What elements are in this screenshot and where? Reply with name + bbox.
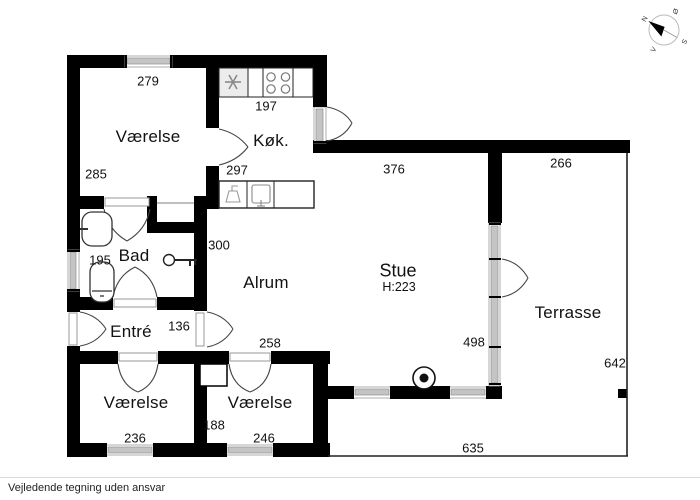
dim-266: 266	[550, 156, 572, 171]
door-entre-to-bad	[113, 267, 157, 297]
door-entre-to-alrum	[207, 312, 233, 347]
window-stue-south-2	[448, 386, 488, 399]
window-top	[125, 55, 172, 68]
dim-376: 376	[383, 162, 405, 177]
vaerelse-tl-label: Værelse	[116, 127, 181, 147]
koekken-label: Køk.	[253, 131, 289, 151]
dim-236: 236	[124, 431, 146, 446]
dim-197: 197	[255, 99, 277, 114]
window-stue-south-1	[352, 386, 392, 399]
dim-188: 188	[203, 418, 225, 433]
dim-246: 246	[253, 431, 275, 446]
window-bad	[67, 250, 80, 291]
wood-stove-icon	[413, 367, 435, 389]
door-vaerelse-to-koekken	[219, 129, 248, 165]
glass-wall-terrace	[489, 223, 501, 386]
kitchen-counter-bottom	[219, 181, 314, 208]
terrasse-label: Terrasse	[535, 303, 602, 323]
dim-285: 285	[85, 167, 107, 182]
floor-plan-page: N Ø S V Værelse 279 285 Køk. 197 297 300…	[0, 0, 700, 500]
dim-136: 136	[168, 319, 190, 334]
alrum-label: Alrum	[243, 273, 288, 293]
compass-w-label: V	[650, 46, 659, 54]
compass-e-label: Ø	[672, 7, 681, 16]
dim-300: 300	[208, 238, 230, 253]
dim-297: 297	[226, 163, 248, 178]
floor-plan-drawing: N Ø S V	[0, 0, 700, 500]
door-stue-to-terrasse	[502, 259, 528, 297]
door-koekken-to-stue	[327, 107, 352, 141]
key-icon	[164, 255, 198, 267]
dim-635: 635	[462, 441, 484, 456]
door-entrance	[80, 312, 106, 346]
vaerelse-bl-label: Værelse	[104, 393, 169, 413]
footer-divider	[0, 477, 700, 478]
kitchen-counter-top	[219, 68, 313, 97]
toilet-icon	[90, 262, 114, 302]
wardrobe	[200, 364, 227, 386]
compass-n-label: N	[641, 15, 650, 23]
door-bedroom-left	[118, 364, 158, 392]
bad-label: Bad	[119, 246, 150, 266]
compass-icon: N Ø S V	[630, 0, 700, 65]
stue-label: Stue	[379, 261, 416, 282]
dim-642: 642	[604, 356, 626, 371]
glass-door-kitchen	[313, 105, 327, 143]
dim-258: 258	[259, 336, 281, 351]
entre-label: Entré	[110, 322, 152, 342]
vaerelse-br-label: Værelse	[228, 393, 293, 413]
dim-498: 498	[463, 335, 485, 350]
dim-279: 279	[137, 74, 159, 89]
disclaimer-text: Vejledende tegning uden ansvar	[8, 482, 165, 494]
stue-height-label: H:223	[382, 280, 415, 294]
compass-s-label: S	[681, 38, 690, 46]
dim-195: 195	[89, 253, 111, 268]
door-bedroom-right	[229, 364, 271, 392]
